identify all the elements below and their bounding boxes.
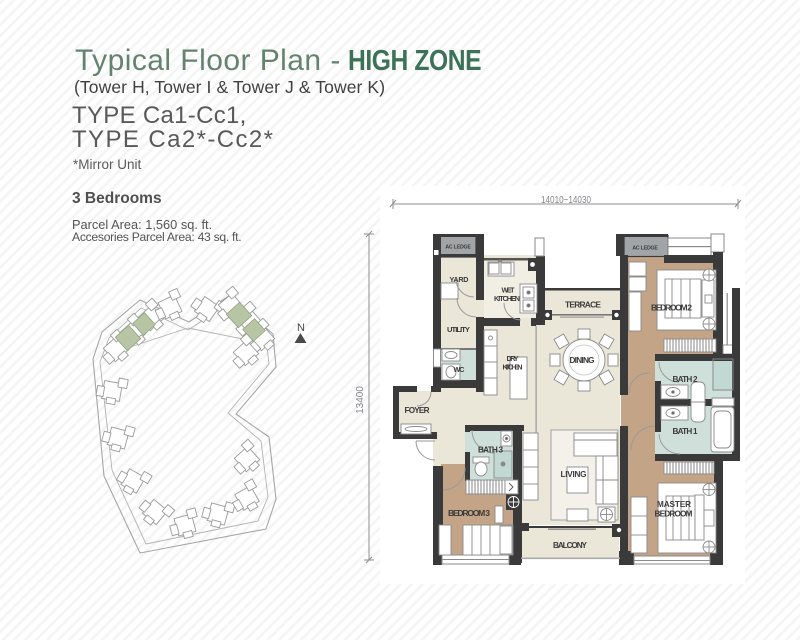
svg-text:TERRACE: TERRACE: [565, 300, 601, 310]
svg-text:UTILITY: UTILITY: [447, 325, 470, 334]
svg-text:BEDROOM: BEDROOM: [655, 510, 693, 519]
svg-text:BATH 3: BATH 3: [478, 446, 503, 455]
svg-text:BEDROOM 3: BEDROOM 3: [448, 508, 490, 518]
svg-text:AC LEDGE: AC LEDGE: [445, 245, 471, 251]
svg-text:KITCHEN: KITCHEN: [503, 363, 523, 372]
svg-text:AC LEDGE: AC LEDGE: [632, 246, 658, 252]
svg-text:BEDROOM 2: BEDROOM 2: [651, 303, 692, 313]
svg-text:MASTER: MASTER: [657, 500, 691, 509]
svg-text:YARD: YARD: [450, 275, 469, 284]
svg-text:WC: WC: [454, 365, 465, 374]
svg-text:BATH 1: BATH 1: [673, 427, 698, 436]
svg-text:13400: 13400: [355, 386, 366, 414]
svg-text:DINING: DINING: [570, 356, 595, 365]
svg-text:14010~14030: 14010~14030: [541, 194, 591, 206]
svg-text:LIVING: LIVING: [561, 470, 587, 479]
svg-text:BALCONY: BALCONY: [553, 541, 588, 550]
svg-text:FOYER: FOYER: [405, 406, 430, 415]
svg-text:KITCHEN: KITCHEN: [494, 294, 520, 303]
svg-text:BATH 2: BATH 2: [673, 375, 698, 384]
svg-text:N: N: [297, 322, 305, 334]
